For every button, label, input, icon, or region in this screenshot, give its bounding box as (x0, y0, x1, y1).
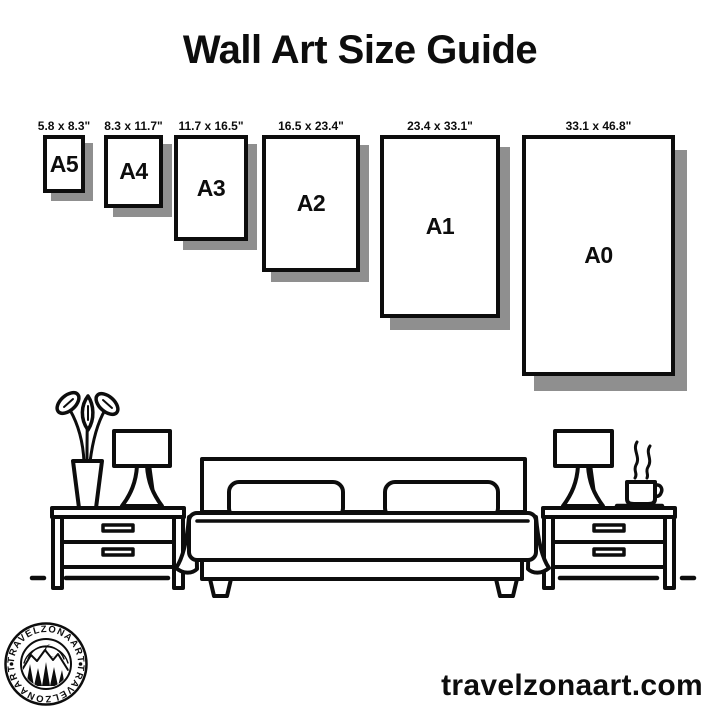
lamp-right-icon (555, 431, 612, 506)
size-guide-poster: Wall Art Size Guide 5.8 x 8.3" A5 8.3 x … (0, 0, 720, 720)
brand-logo: ·TRAVELZONAART· ·TRAVELZONAART· (0, 0, 94, 720)
lamp-left-icon (114, 431, 170, 506)
bed-icon (176, 459, 549, 596)
plant-icon (53, 389, 121, 508)
vase-icon (73, 461, 102, 508)
bedroom-illustration: ·TRAVELZONAART· ·TRAVELZONAART· (0, 0, 720, 720)
bed-leg-icon (496, 579, 517, 596)
website-url: travelzonaart.com (441, 669, 703, 703)
coffee-cup-icon (617, 442, 662, 506)
bed-leg-icon (210, 579, 231, 596)
